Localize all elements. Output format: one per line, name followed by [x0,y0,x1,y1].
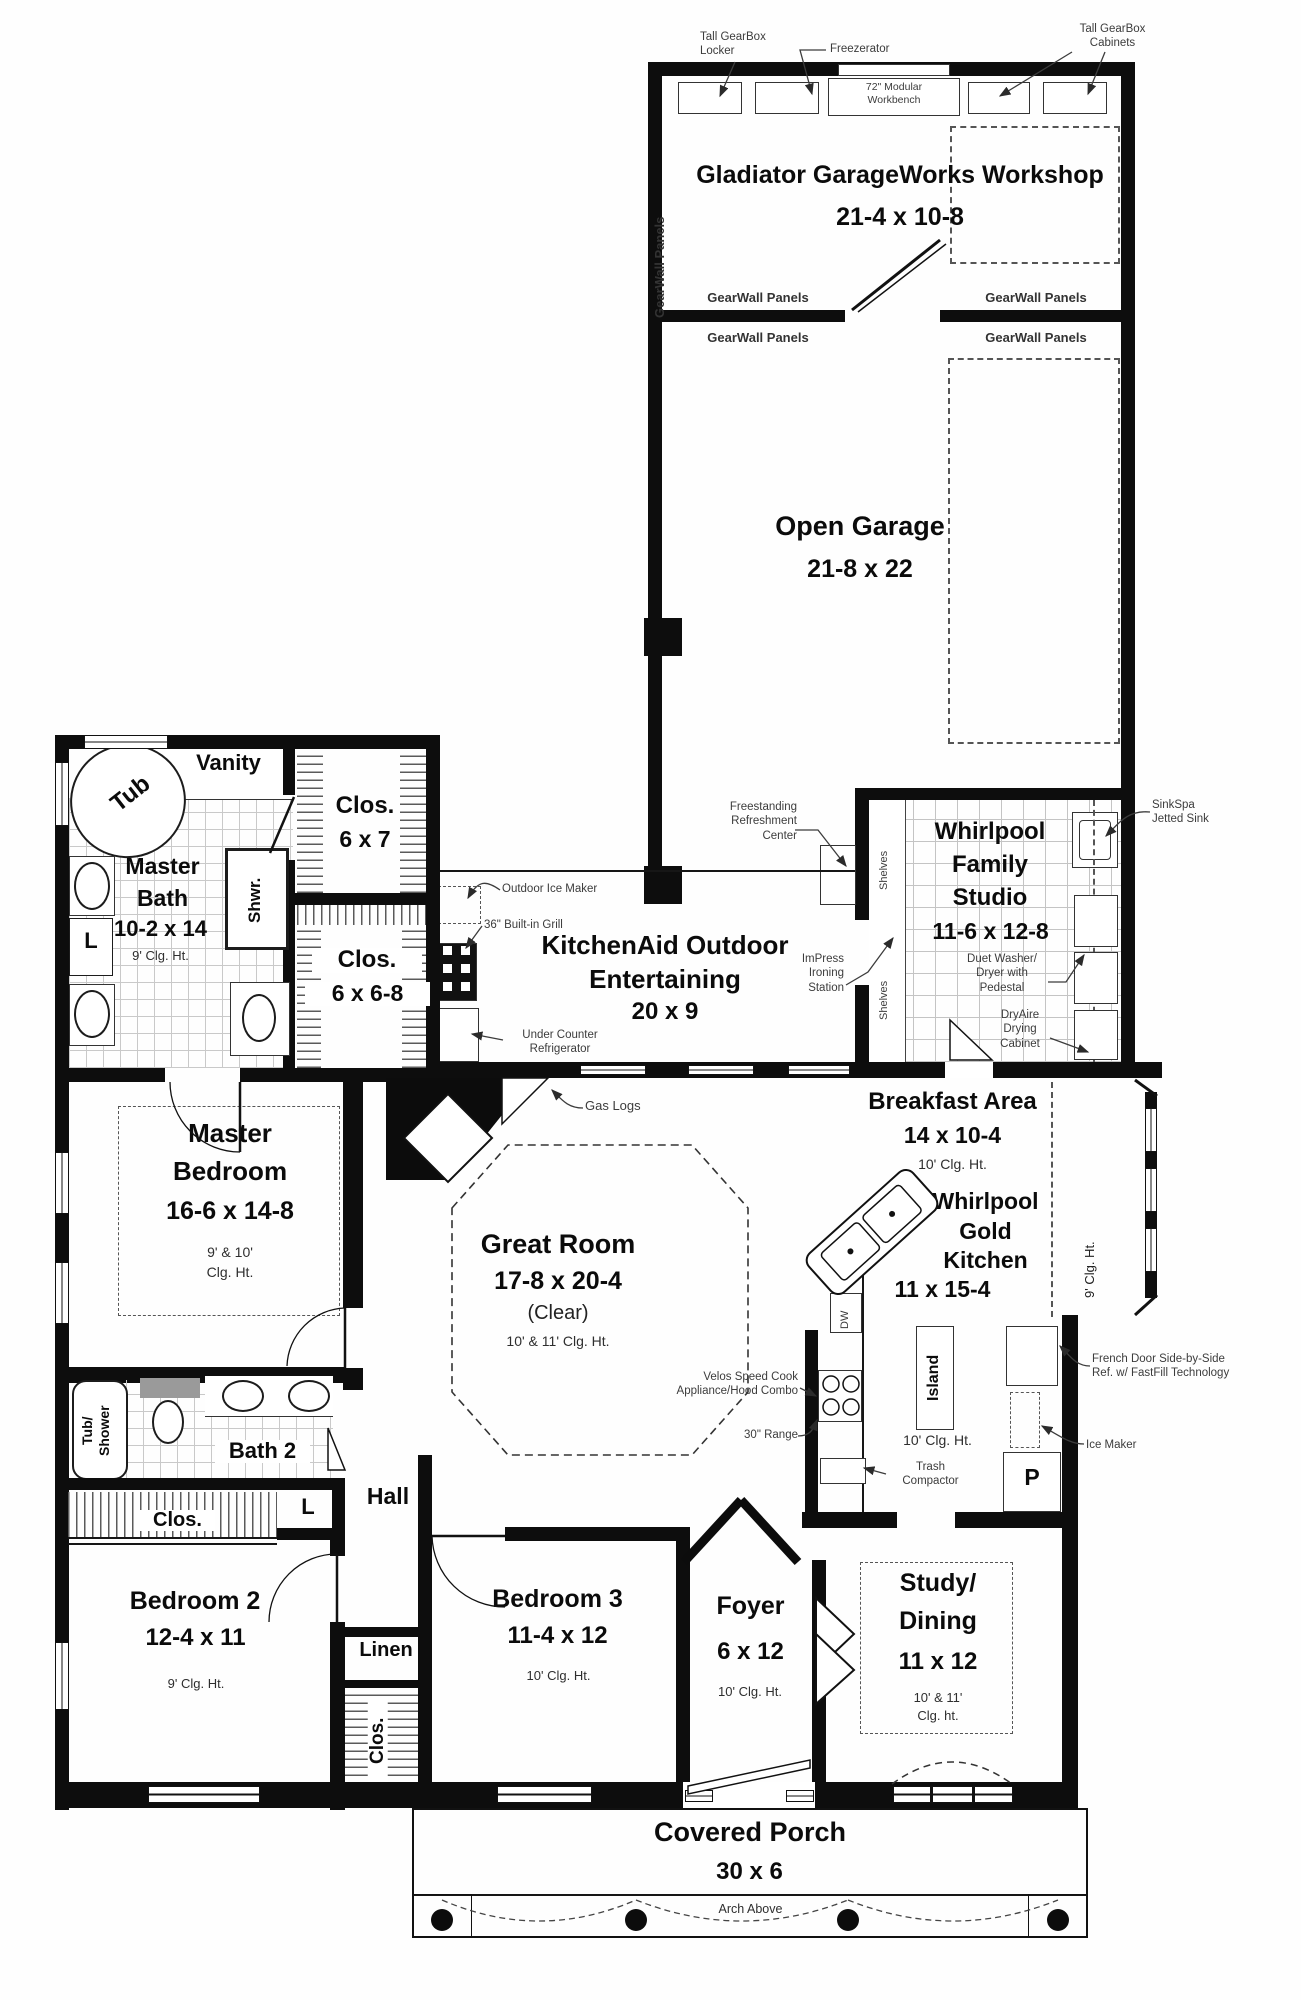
room-clg-foyer: 10' Clg. Ht. [690,1684,810,1699]
gas-logs-label: Gas Logs [585,1098,675,1114]
duet-washer-dryer-label: Duet Washer/Dryer withPedestal [952,952,1052,995]
wall [812,1560,826,1810]
room-name-family-studio: Whirlpool [905,820,1075,845]
wall [855,788,869,920]
window [788,1065,850,1075]
room-dim-bedroom3: 11-4 x 12 [480,1624,635,1649]
room-dim-porch: 30 x 6 [692,1860,807,1885]
room-name-kitchen: Whirlpool [928,1190,1043,1214]
workbench-top [838,64,950,76]
room-clear-great-room: (Clear) [490,1303,626,1324]
window [148,1786,260,1803]
room-dim-bedroom2: 12-4 x 11 [118,1626,273,1651]
velos-label: Velos Speed CookAppliance/Hood Combo [640,1370,798,1399]
wall [283,735,295,795]
duet-washer [1074,895,1118,947]
room-clg-great-room: 10' & 11' Clg. Ht. [480,1333,636,1349]
builtin-grill-label: 36" Built-in Grill [484,918,604,932]
room-name-linen: Linen [346,1640,426,1661]
bath2-toilet [152,1400,184,1444]
island-label: Island [926,1338,943,1418]
gearwall-panels-label: GearWall Panels [652,138,668,318]
fireplace [386,1078,548,1182]
room-name-master-bath: Bath [100,887,225,911]
room-dim-open-garage: 21-8 x 22 [700,556,1020,582]
master-toilet [242,994,276,1042]
room-name-bedroom3: Bedroom 3 [465,1586,650,1612]
room-name-closet-bed2: Clos. [140,1510,215,1531]
room-clg-master-bedroom: 9' & 10' [170,1244,290,1260]
bath2-sink [222,1380,264,1412]
breakfast-dashed-line [1051,1082,1053,1317]
window [55,1152,69,1214]
outdoor-ice-maker-label: Outdoor Ice Maker [502,882,632,896]
range-label: 30" Range [718,1428,798,1442]
wall [332,1627,430,1637]
room-name-bedroom2: Bedroom 2 [105,1588,285,1614]
floor-plan: 72" ModularWorkbench Gladiator GarageWor… [0,0,1301,2000]
room-clg-master-bath: 9' Clg. Ht. [93,948,228,963]
tub-shower-label: Tub/ [80,1393,95,1469]
bay-ceiling-label: 9' Clg. Ht. [1082,1148,1098,1298]
wall [662,310,845,322]
room-name-breakfast: Breakfast Area [850,1090,1055,1115]
gearwall-panels-label: GearWall Panels [688,290,828,306]
room-name-closet-6x68: Clos. [312,948,422,973]
wall [55,1478,345,1490]
window [580,1065,646,1075]
bay-wall [1135,1295,1157,1315]
porch-note: Arch Above [698,1902,803,1916]
room-clg-study: Clg. ht. [894,1708,982,1723]
room-dim-breakfast: 14 x 10-4 [860,1124,1045,1148]
room-name-outdoor: Entertaining [505,966,825,993]
window [55,1642,69,1710]
closet-doors [68,1543,277,1545]
wall [1121,62,1135,1075]
studio-door-gap [945,1062,993,1078]
dw-label: DW [839,1297,853,1329]
room-name-master-bedroom: Bedroom [150,1158,310,1185]
gearbox-cabinets-label: Tall GearBoxCabinets [1055,22,1170,51]
window [1145,1108,1157,1152]
range [818,1370,862,1422]
room-name-family-studio: Studio [905,886,1075,911]
french-door-fridge [1006,1326,1058,1386]
room-clg-study: 10' & 11' [892,1690,984,1705]
wall [505,1527,690,1541]
room-name-foyer: Foyer [698,1593,803,1619]
room-dim-kitchen: 11 x 15-4 [880,1278,1005,1302]
wall [676,1540,690,1810]
room-dim-outdoor: 20 x 9 [505,1000,825,1025]
room-name-kitchen: Kitchen [928,1249,1043,1273]
wall [277,1528,345,1540]
closet-doors [68,1537,277,1539]
window [55,1262,69,1324]
window [1145,1168,1157,1212]
room-name-kitchen: Gold [928,1220,1043,1244]
window [893,1786,1013,1803]
room-name-bath2: Bath 2 [215,1440,310,1463]
trash-compactor [820,1458,866,1484]
ice-maker-box [1010,1392,1040,1448]
sidelight [685,1790,713,1802]
wall [418,1455,432,1810]
refreshment-label: FreestandingRefreshmentCenter [692,800,797,843]
room-name-family-studio: Family [905,853,1075,878]
ice-maker-label: Ice Maker [1086,1438,1166,1452]
room-name-porch: Covered Porch [615,1818,885,1846]
dryaire-cabinet [1074,1010,1118,1060]
great-room-dashed-octagon [452,1145,748,1455]
window [497,1786,592,1803]
tub-shower-label: Shower [97,1393,112,1469]
wall [55,1068,165,1082]
refreshment-center [820,845,856,905]
wall [343,1368,363,1390]
workshop-dashed-area [950,126,1120,264]
room-dim-study: 11 x 12 [882,1650,994,1675]
wall [1062,1315,1078,1810]
room-dim-closet-6x68: 6 x 6-8 [305,982,430,1006]
trash-label: TrashCompactor [888,1460,973,1489]
room-dim-foyer: 6 x 12 [698,1640,803,1665]
room-clg-breakfast: 10' Clg. Ht. [870,1156,1035,1172]
room-name-master-bedroom: Master [160,1120,300,1147]
workbench-label: 72" ModularWorkbench [830,81,958,107]
outdoor-ice-maker-box [433,886,481,924]
freezerator-label: Freezerator [830,42,930,56]
window [688,1065,754,1075]
porch-inner-line [414,1894,1086,1896]
room-name-vanity: Vanity [176,752,281,775]
gearbox-cabinet [968,82,1030,114]
room-clg-bedroom3: 10' Clg. Ht. [476,1668,641,1683]
room-dim-master-bedroom: 16-6 x 14-8 [146,1198,314,1224]
garage-dashed-area [948,358,1120,744]
window [1145,1228,1157,1272]
room-clg-kitchen: 10' Clg. Ht. [885,1432,990,1448]
room-name-outdoor: KitchenAid Outdoor [505,932,825,959]
shelves-label: Shelves [878,818,892,890]
closet-hatch [400,749,426,893]
room-name-study: Study/ [882,1570,994,1596]
duet-dryer [1074,952,1118,1004]
room-dim-closet-6x7: 6 x 7 [310,828,420,852]
room-name-great-room: Great Room [468,1230,648,1258]
garage-post [644,618,682,656]
room-name-shower: Shwr. [246,862,264,938]
wall [940,310,1121,322]
under-counter-label: Under CounterRefrigerator [505,1028,615,1057]
dryaire-label: DryAireDryingCabinet [985,1008,1055,1051]
shelves-label: Shelves [878,948,892,1020]
gearwall-panels-label: GearWall Panels [966,330,1106,346]
porch-step [1028,1894,1088,1938]
gearwall-panels-label: GearWall Panels [688,330,828,346]
freezerator-cabinet [755,82,819,114]
room-name-hall-l: L [288,1496,328,1519]
study-arch-dashed [892,1762,1012,1784]
room-clg-bedroom2: 9' Clg. Ht. [116,1676,276,1691]
room-dim-family-studio: 11-6 x 12-8 [898,920,1083,944]
pantry-label: P [1012,1466,1052,1490]
master-sink [74,990,110,1038]
window [55,762,69,826]
room-clg-master-bedroom: Clg. Ht. [170,1264,290,1280]
wall [805,1330,818,1512]
closet-hatch [297,905,426,925]
room-name-workshop: Gladiator GarageWorks Workshop [690,162,1110,188]
room-name-open-garage: Open Garage [700,512,1020,540]
gearbox-locker-label: Tall GearBoxLocker [700,30,815,59]
room-name-hall: Hall [348,1485,428,1509]
sinkspa-label: SinkSpaJetted Sink [1152,798,1262,827]
room-name-study: Dining [880,1608,996,1634]
bath2-shelf [140,1378,200,1398]
gearwall-panels-label: GearWall Panels [966,290,1106,306]
patio-line [438,870,855,872]
room-dim-master-bath: 10-2 x 14 [93,918,228,941]
room-name-closet-6x7: Clos. [310,794,420,819]
wall [955,1512,1075,1528]
wall [240,1068,440,1082]
gearbox-cabinet [1043,82,1107,114]
wall [802,1512,897,1528]
sinkspa-jetted-sink [1079,820,1111,860]
porch-step [412,1894,472,1938]
window [84,735,168,749]
room-name-closet-bed3: Clos. [368,1698,388,1784]
wall [330,1540,345,1556]
wall [426,735,440,1082]
wall [332,1680,430,1688]
bath2-sink [288,1380,330,1412]
room-name-master-bath: Master [100,855,225,879]
room-dim-workshop: 21-4 x 10-8 [690,204,1110,230]
closet-hatch [297,749,323,893]
room-dim-great-room: 17-8 x 20-4 [474,1268,642,1294]
wall [343,1068,363,1308]
wall [295,893,440,905]
fridge-label: French Door Side-by-SideRef. w/ FastFill… [1092,1352,1272,1381]
sidelight [786,1790,814,1802]
gearbox-locker [678,82,742,114]
wall [855,788,1135,800]
